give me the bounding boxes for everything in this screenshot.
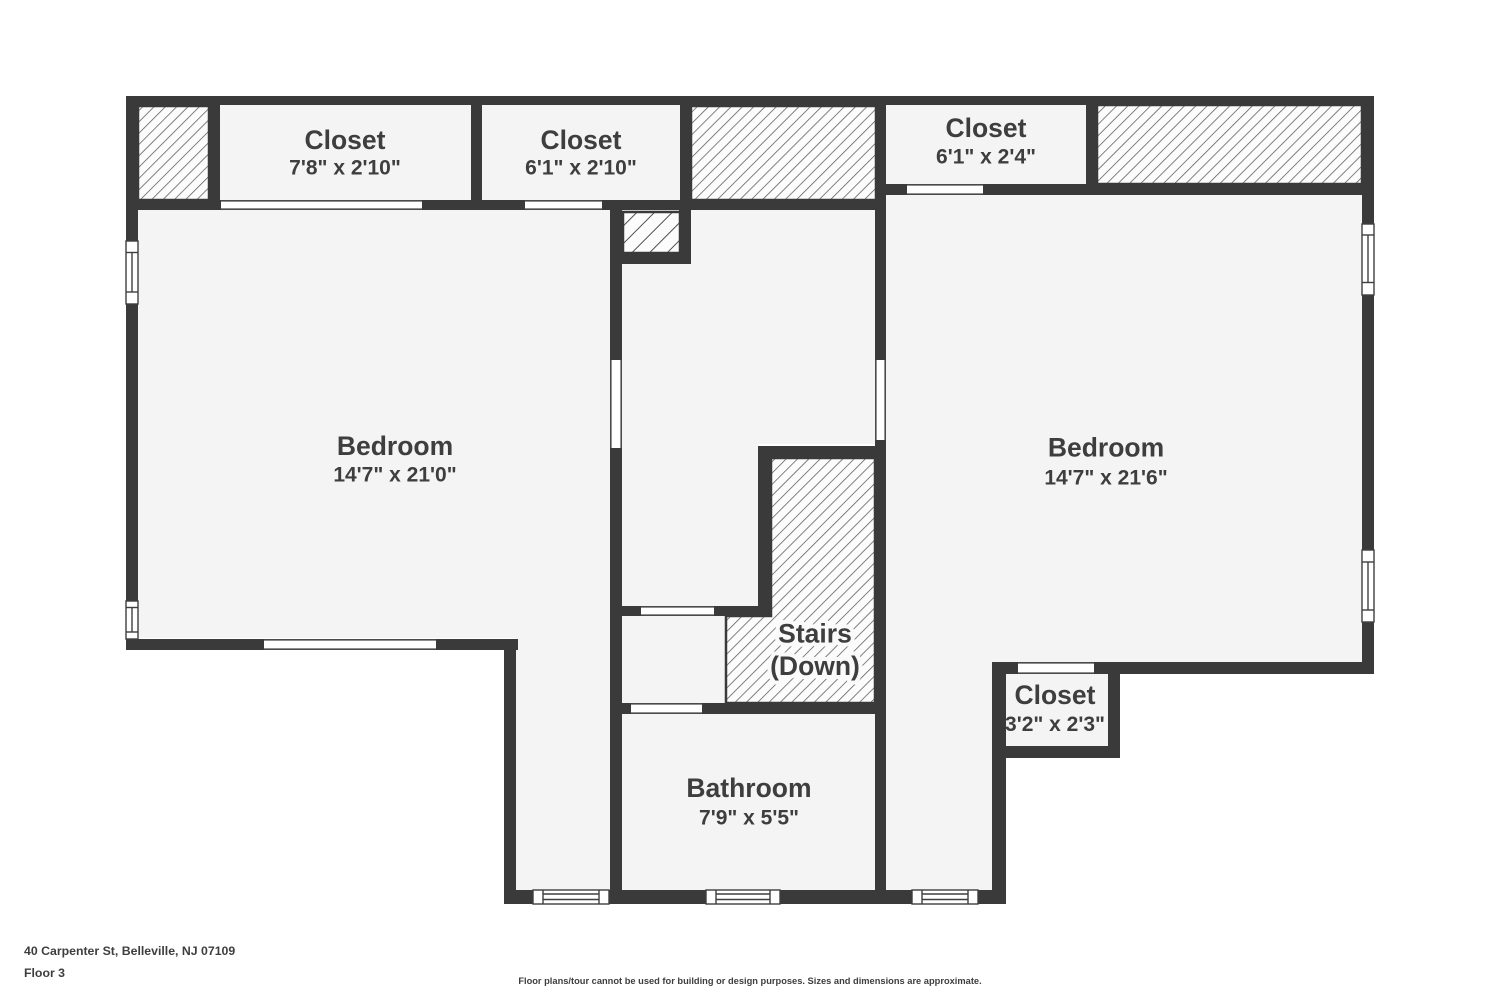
svg-text:Bedroom: Bedroom (1048, 433, 1164, 463)
svg-text:7'9" x 5'5": 7'9" x 5'5" (699, 807, 799, 830)
svg-text:Closet: Closet (1015, 680, 1096, 710)
svg-text:14'7" x 21'6": 14'7" x 21'6" (1044, 467, 1167, 490)
svg-text:Bathroom: Bathroom (686, 773, 811, 803)
svg-text:6'1" x 2'10": 6'1" x 2'10" (525, 157, 637, 180)
svg-text:(Down): (Down) (770, 651, 860, 681)
svg-text:40 Carpenter St, Belleville, N: 40 Carpenter St, Belleville, NJ 07109 (24, 944, 235, 958)
svg-text:3'2" x 2'3": 3'2" x 2'3" (1005, 713, 1105, 736)
svg-text:Closet: Closet (305, 125, 386, 155)
svg-text:14'7" x 21'0": 14'7" x 21'0" (333, 464, 456, 487)
svg-text:7'8" x 2'10": 7'8" x 2'10" (289, 157, 401, 180)
svg-text:Bedroom: Bedroom (337, 431, 453, 461)
svg-text:Closet: Closet (946, 113, 1027, 143)
svg-text:Stairs: Stairs (778, 619, 852, 649)
svg-text:Closet: Closet (541, 125, 622, 155)
svg-text:Floor 3: Floor 3 (24, 966, 65, 980)
svg-text:6'1" x 2'4": 6'1" x 2'4" (936, 146, 1036, 169)
svg-text:Floor plans/tour cannot be use: Floor plans/tour cannot be used for buil… (518, 976, 981, 986)
